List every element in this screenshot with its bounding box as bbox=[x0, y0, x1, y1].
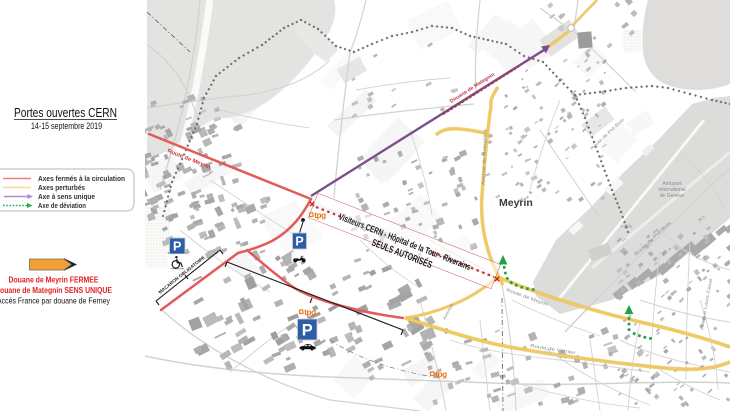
svg-text:Axes perturbés: Axes perturbés bbox=[38, 183, 85, 192]
svg-text:Meyrin: Meyrin bbox=[499, 197, 533, 209]
svg-text:P: P bbox=[302, 321, 313, 339]
svg-text:de Genève: de Genève bbox=[660, 193, 685, 199]
svg-text:Douane de Mategnin SENS UNIQUE: Douane de Mategnin SENS UNIQUE bbox=[0, 286, 112, 295]
svg-text:Axes fermés à la circulation: Axes fermés à la circulation bbox=[38, 174, 125, 183]
svg-text:Accès France par douane de Fer: Accès France par douane de Ferney bbox=[0, 297, 111, 306]
svg-text:Douane de Meyrin FERMEE: Douane de Meyrin FERMEE bbox=[9, 276, 99, 285]
svg-text:tpg: tpg bbox=[435, 370, 447, 379]
svg-text:Axe à sens unique: Axe à sens unique bbox=[38, 192, 95, 201]
svg-text:Axe de déviation: Axe de déviation bbox=[38, 201, 86, 210]
svg-text:tpg: tpg bbox=[314, 211, 326, 220]
svg-text:P: P bbox=[295, 235, 303, 249]
svg-text:14-15 septembre 2019: 14-15 septembre 2019 bbox=[31, 121, 102, 131]
svg-text:tpg: tpg bbox=[304, 308, 316, 317]
svg-text:P: P bbox=[173, 240, 181, 254]
svg-text:Portes ouvertes CERN: Portes ouvertes CERN bbox=[14, 105, 117, 120]
